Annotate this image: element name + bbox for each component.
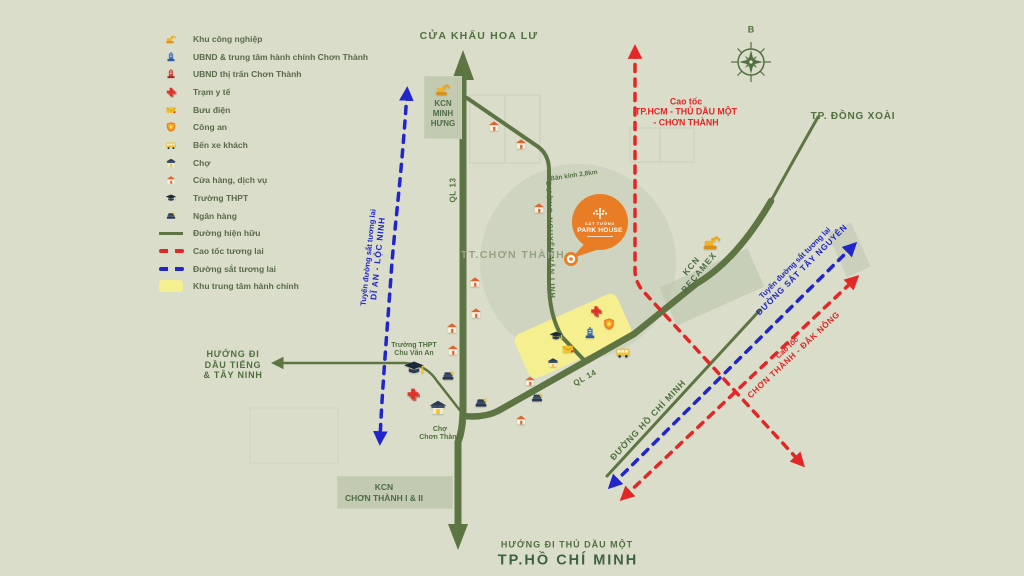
industrial-icon (433, 79, 453, 99)
legend-swatch-blue-dash (158, 267, 184, 271)
legend-item-14: Khu trung tâm hành chính (158, 278, 428, 296)
legend-item-label: Khu trung tâm hành chính (193, 281, 299, 291)
tree-logo-icon (591, 207, 609, 220)
legend-item-3: Trạm y tế (158, 83, 428, 101)
dest-tp-dong-xoai: TP. ĐỒNG XOÀI (811, 111, 896, 123)
legend-swatch-line (158, 232, 184, 235)
compass-icon (731, 42, 771, 82)
legend-item-label: Đường sắt tương lai (193, 264, 276, 274)
map-graphics (0, 0, 1024, 576)
legend-item-0: Khu công nghiệp (158, 30, 428, 48)
legend-item-label: Cửa hàng, dịch vụ (193, 175, 267, 185)
legend-item-2: UBND thị trấn Chơn Thành (158, 65, 428, 83)
dest-tp-ho-chi-minh: TP.HỒ CHÍ MINH (498, 552, 639, 569)
shop-icon (158, 173, 184, 187)
dest-cua-khau-hoa-lu: CỬA KHẨU HOA LƯ (420, 30, 539, 42)
legend-item-label: Bưu điện (193, 105, 230, 115)
dest-dau-tieng-tay-ninh: HƯỚNG ĐI DẦU TIẾNG & TÂY NINH (203, 349, 262, 381)
legend-item-7: Chợ (158, 154, 428, 172)
legend-item-13: Đường sắt tương lai (158, 260, 428, 278)
market-icon (158, 156, 184, 170)
medical-icon (158, 85, 184, 99)
legend-swatch-yellow-rect (158, 280, 184, 292)
legend-item-5: Công an (158, 118, 428, 136)
legend-item-label: Trường THPT (193, 193, 248, 203)
legend-item-label: Khu công nghiệp (193, 34, 262, 44)
legend-item-12: Cao tốc tương lai (158, 242, 428, 260)
industrial-icon (158, 32, 184, 46)
road-ql13 (458, 74, 463, 526)
compass-north-label: B (748, 25, 755, 36)
legend-item-9: Trường THPT (158, 189, 428, 207)
label-ql13: QL 13 (448, 177, 457, 202)
road-to-dong-xoai (771, 117, 818, 201)
school-icon (158, 191, 184, 205)
legend-item-label: Ngân hàng (193, 211, 237, 221)
legend-item-6: Bến xe khách (158, 136, 428, 154)
bus-icon (158, 138, 184, 152)
label-cho-chon-thanh: Chợ Chơn Thành (419, 426, 461, 443)
zone-kcn-chon-thanh-1-2: KCN CHƠN THÀNH I & II (337, 476, 453, 509)
legend-item-label: Bến xe khách (193, 140, 248, 150)
dest-thu-dau-mot: HƯỚNG ĐI THỦ DẦU MỘT (501, 540, 633, 551)
south-arrow-head (448, 524, 468, 550)
legend-item-label: Công an (193, 122, 227, 132)
label-truong-thpt-chu-van-an: Trường THPT Chu Văn An (391, 342, 436, 359)
legend-item-label: Chợ (193, 158, 210, 168)
legend-item-label: Đường hiện hữu (193, 228, 260, 238)
ubnd-blue-icon (158, 50, 184, 64)
road-to-dau-tieng (276, 363, 462, 413)
post-icon (158, 103, 184, 117)
legend-item-label: Trạm y tế (193, 87, 230, 97)
project-brand: CÁT TƯỜNG (585, 221, 615, 226)
legend: Khu công nghiệpUBND & trung tâm hành chí… (158, 30, 428, 295)
legend-item-label: UBND thị trấn Chơn Thành (193, 69, 302, 79)
park-house-pin: CÁT TƯỜNG PARK HOUSE (572, 194, 628, 250)
legend-item-1: UBND & trung tâm hành chính Chơn Thành (158, 48, 428, 66)
legend-item-11: Đường hiện hữu (158, 225, 428, 243)
legend-item-label: UBND & trung tâm hành chính Chơn Thành (193, 52, 368, 62)
legend-swatch-red-dash (158, 249, 184, 253)
project-name: PARK HOUSE (577, 227, 622, 234)
legend-item-8: Cửa hàng, dịch vụ (158, 172, 428, 190)
location-map: Khu công nghiệpUBND & trung tâm hành chí… (0, 0, 1024, 576)
ubnd-red-icon (158, 67, 184, 81)
zone-kcn-minh-hung: KCN MINH HƯNG (424, 76, 462, 139)
legend-item-4: Bưu điện (158, 101, 428, 119)
bank-icon (158, 209, 184, 223)
label-expressway-north: Cao tốc TP.HCM - THỦ DẦU MỘT - CHƠN THÀN… (635, 96, 737, 127)
project-tagline-line (587, 236, 613, 237)
police-icon (158, 120, 184, 134)
legend-item-label: Cao tốc tương lai (193, 246, 264, 256)
